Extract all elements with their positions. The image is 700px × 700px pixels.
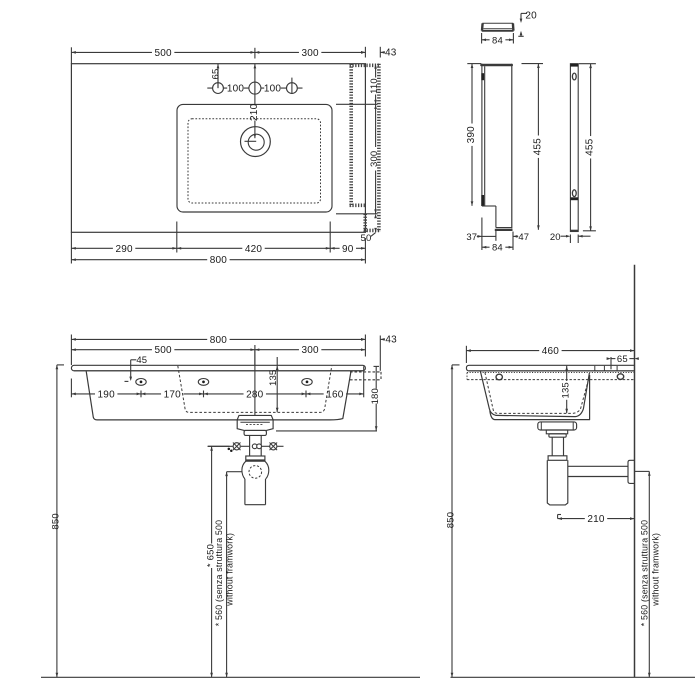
- svg-text:43: 43: [385, 335, 397, 346]
- svg-text:170: 170: [164, 389, 182, 400]
- svg-text:210: 210: [587, 514, 605, 525]
- svg-text:300: 300: [302, 48, 320, 59]
- svg-text:160: 160: [326, 389, 344, 400]
- svg-text:190: 190: [98, 389, 116, 400]
- svg-text:455: 455: [533, 138, 544, 156]
- svg-text:500: 500: [155, 345, 173, 356]
- svg-text:390: 390: [466, 126, 477, 144]
- svg-text:65: 65: [617, 354, 628, 365]
- svg-text:460: 460: [542, 346, 560, 357]
- svg-text:84: 84: [492, 35, 503, 46]
- svg-text:500: 500: [155, 48, 173, 59]
- svg-text:without framwork): without framwork): [651, 533, 661, 607]
- svg-text:180: 180: [370, 388, 381, 404]
- svg-text:850: 850: [445, 512, 456, 528]
- svg-text:37: 37: [466, 232, 477, 243]
- svg-text:420: 420: [245, 244, 263, 255]
- svg-text:300: 300: [302, 345, 320, 356]
- svg-text:135: 135: [561, 382, 572, 398]
- svg-text:210: 210: [249, 103, 260, 121]
- svg-text:800: 800: [210, 335, 228, 346]
- svg-text:100: 100: [264, 84, 282, 95]
- svg-text:47: 47: [518, 232, 529, 243]
- svg-text:84: 84: [492, 243, 503, 254]
- svg-text:65: 65: [211, 69, 222, 80]
- svg-text:300: 300: [369, 151, 380, 167]
- svg-text:100: 100: [227, 84, 245, 95]
- svg-text:850: 850: [50, 513, 61, 529]
- svg-text:45: 45: [136, 355, 147, 366]
- svg-text:20: 20: [550, 232, 561, 243]
- svg-text:110: 110: [369, 78, 380, 94]
- svg-text:* 560 (senza struttura 500: * 560 (senza struttura 500: [639, 520, 649, 626]
- svg-text:* 560 (senza struttura 500: * 560 (senza struttura 500: [214, 520, 224, 626]
- svg-text:290: 290: [115, 244, 133, 255]
- svg-text:800: 800: [210, 255, 228, 266]
- svg-text:90: 90: [342, 244, 354, 255]
- svg-text:50: 50: [361, 233, 372, 244]
- svg-text:135: 135: [268, 370, 279, 386]
- svg-text:without framwork): without framwork): [225, 533, 235, 607]
- svg-text:20: 20: [525, 10, 537, 21]
- svg-text:43: 43: [385, 48, 397, 59]
- svg-text:455: 455: [585, 138, 596, 156]
